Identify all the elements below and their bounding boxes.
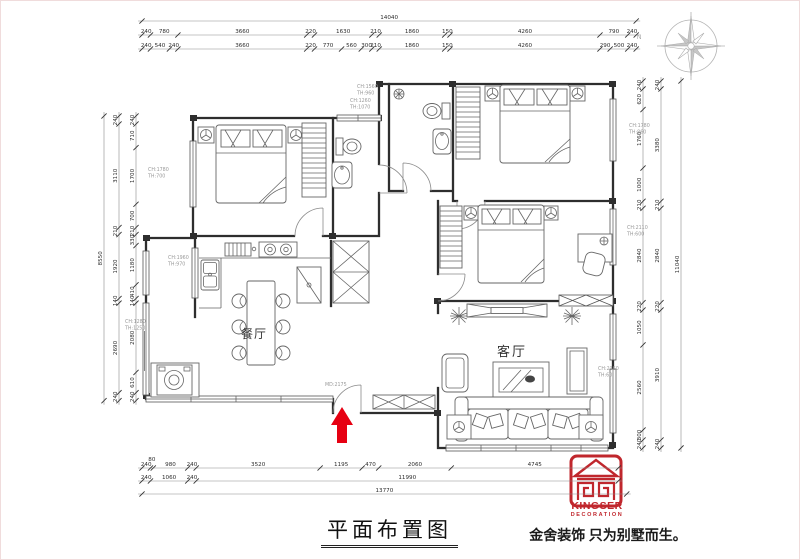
- dim-label: 240: [637, 79, 643, 90]
- dim-label: 2560: [637, 380, 643, 395]
- window-annotation: TH:960: [356, 90, 374, 96]
- dim-label: 610: [130, 377, 136, 388]
- dim-label: 210: [637, 199, 643, 210]
- bathroom-2: [394, 89, 451, 154]
- compass-north-label: N: [637, 35, 641, 41]
- room-label-living: 客厅: [497, 341, 527, 360]
- dim-label: 240: [113, 114, 119, 125]
- logo-subtext: DECORATION: [561, 512, 633, 518]
- dim-label: 4260: [518, 29, 533, 35]
- master-bedroom: [456, 85, 585, 163]
- dim-label: 1630: [336, 29, 351, 35]
- window-annotation: TH:700: [147, 173, 165, 179]
- dim-label: 240: [130, 114, 136, 125]
- dim-label: 210: [370, 29, 381, 35]
- dim-label: 1860: [405, 43, 420, 49]
- dim-label: 240: [655, 438, 661, 449]
- room-label-dining: 餐厅: [241, 325, 267, 342]
- window-annotation: CH:1560: [357, 84, 378, 90]
- dim-label: 8550: [98, 251, 104, 266]
- dim-label: 11990: [398, 475, 416, 481]
- dim-label: 150: [442, 43, 453, 49]
- dim-label: 980: [165, 462, 176, 468]
- shoe-cabinet: [373, 395, 435, 409]
- dim-label: 330: [130, 234, 136, 245]
- window-annotation: CH:2360: [598, 366, 619, 372]
- dim-label: 13770: [375, 488, 393, 494]
- window-annotation: TH:970: [167, 261, 185, 267]
- dim-label: 2840: [655, 248, 661, 263]
- dim-label: 80: [148, 457, 156, 463]
- dim-label: 1050: [637, 320, 643, 335]
- dim-label: 700: [130, 210, 136, 221]
- floor-plan-drawing: 1404024078036602201630210186015042607902…: [1, 1, 799, 559]
- dim-label: 4745: [528, 462, 543, 468]
- window-annotation: TH:600: [626, 231, 644, 237]
- dim-label: 2060: [408, 462, 423, 468]
- dim-label: 240: [187, 462, 198, 468]
- dim-label: 770: [323, 43, 334, 49]
- dim-label: 2690: [113, 340, 119, 355]
- dim-label: 240: [141, 29, 152, 35]
- dim-label: 540: [155, 43, 166, 49]
- balcony-laundry: [151, 363, 199, 397]
- bedroom-3: [440, 205, 612, 283]
- dim-label: 240: [113, 391, 119, 402]
- dim-label: 2840: [637, 248, 643, 263]
- dim-label: 1060: [162, 475, 177, 481]
- window-annotation: CH:1780: [629, 123, 650, 129]
- dim-label: 4260: [518, 43, 533, 49]
- dim-label: 150: [442, 29, 453, 35]
- window-annotation: CH:1780: [148, 167, 169, 173]
- floorplan-sheet: 1404024078036602201630210186015042607902…: [0, 0, 800, 560]
- window-annotation: CH:1960: [168, 255, 189, 261]
- window-annotation: TH:60: [597, 372, 612, 378]
- dim-label: 240: [627, 29, 638, 35]
- dim-label: 780: [159, 29, 170, 35]
- dim-label: 240: [168, 43, 179, 49]
- drawing-title: 平面布置图: [321, 514, 458, 548]
- dim-label: 240: [637, 438, 643, 449]
- dim-label: 620: [637, 94, 643, 105]
- window-annotation: CH:1280: [125, 319, 146, 325]
- dim-label: 1195: [334, 462, 349, 468]
- dim-label: 240: [187, 475, 198, 481]
- dim-label: 290: [600, 43, 611, 49]
- dim-label: 210: [113, 225, 119, 236]
- dim-label: 1700: [130, 168, 136, 183]
- dim-label: 3110: [113, 168, 119, 183]
- dim-label: 3380: [655, 138, 661, 153]
- dim-label: 210: [370, 43, 381, 49]
- dim-label: 140: [130, 295, 136, 306]
- window-annotation: CH:1260: [350, 98, 371, 104]
- window-annotation: CH:2110: [627, 225, 648, 231]
- window-annotation: TH:1070: [349, 104, 370, 110]
- dim-label: 1000: [637, 177, 643, 192]
- bathroom-1: [332, 138, 361, 188]
- dim-label: 220: [305, 43, 316, 49]
- dim-label: 240: [627, 43, 638, 49]
- logo-wordmark: KINGSER: [563, 500, 631, 512]
- dim-label: 240: [141, 475, 152, 481]
- dim-label: 1180: [130, 258, 136, 273]
- bedroom-1: [198, 123, 326, 203]
- dim-label: 2080: [130, 330, 136, 345]
- brand-tagline: 金舍装饰 只为别墅而生。: [503, 525, 713, 545]
- dim-label: 220: [637, 301, 643, 312]
- window-annotation: MD:2175: [325, 382, 347, 388]
- window-annotation: TH:1250: [124, 325, 145, 331]
- dim-label: 3660: [235, 29, 250, 35]
- dim-label: 3520: [251, 462, 266, 468]
- dim-label: 140: [113, 295, 119, 306]
- dim-label: 14040: [380, 15, 398, 21]
- hall-cabinet: [333, 241, 369, 303]
- living-room: [442, 304, 603, 441]
- window-annotation: TH:860: [628, 129, 646, 135]
- dim-label: 240: [655, 79, 661, 90]
- dim-label: 410: [130, 286, 136, 297]
- dim-label: 710: [130, 130, 136, 141]
- dim-label: 560: [346, 43, 357, 49]
- dim-label: 500: [614, 43, 625, 49]
- dim-label: 220: [655, 301, 661, 312]
- dim-label: 470: [365, 462, 376, 468]
- dim-label: 1920: [113, 259, 119, 274]
- compass-north-icon: [657, 12, 725, 80]
- dining-room: [232, 281, 290, 365]
- dim-label: 220: [305, 29, 316, 35]
- entrance-arrow: [331, 407, 353, 443]
- dim-label: 11040: [675, 255, 681, 273]
- dim-label: 210: [655, 199, 661, 210]
- dim-label: 240: [141, 43, 152, 49]
- dim-label: 240: [130, 391, 136, 402]
- dim-label: 1860: [405, 29, 420, 35]
- dim-label: 3910: [655, 367, 661, 382]
- dim-label: 790: [609, 29, 620, 35]
- dim-label: 3660: [235, 43, 250, 49]
